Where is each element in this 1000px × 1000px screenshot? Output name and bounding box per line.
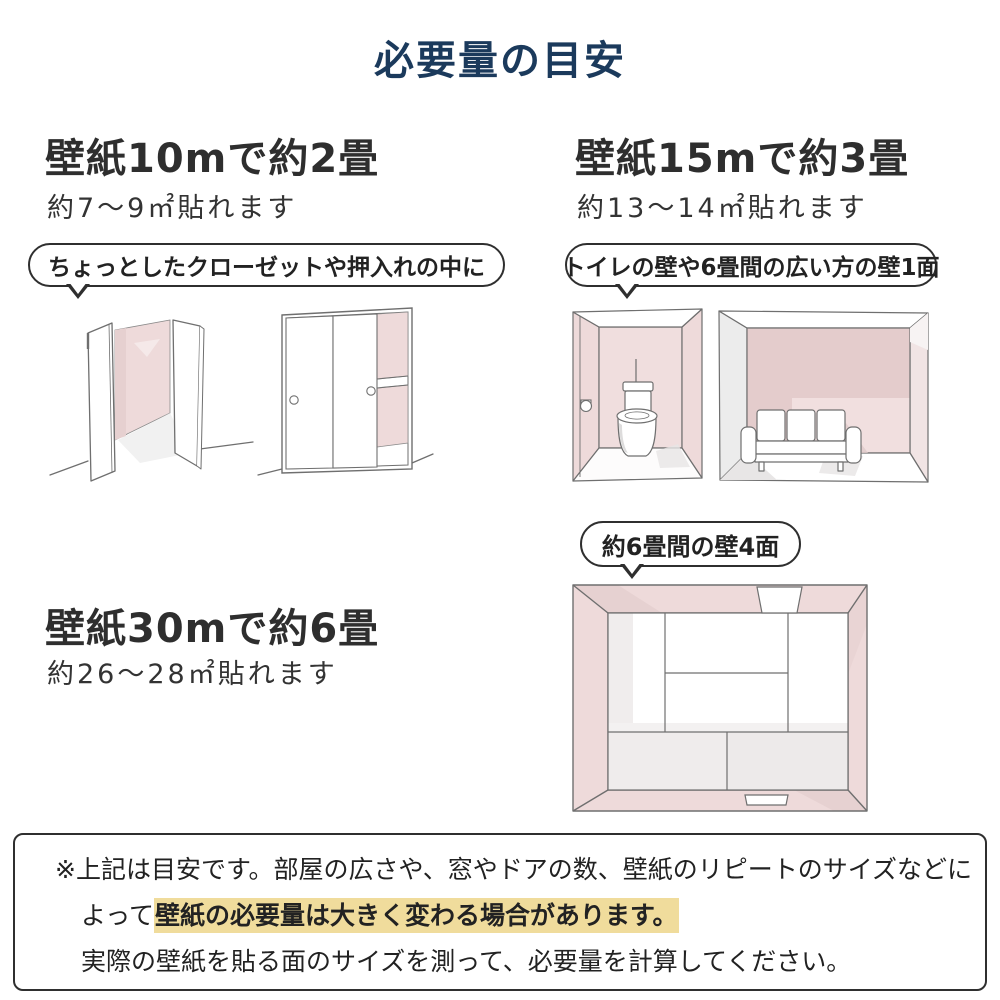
note-highlight: 壁紙の必要量は大きく変わる場合があります。 [154, 898, 679, 933]
bubble-toilet-usage: トイレの壁や6畳間の広い方の壁1面 [565, 243, 937, 287]
bubble-closet-usage-label: ちょっとしたクローゼットや押入れの中に [48, 248, 485, 282]
toilet-room-illustration [570, 305, 705, 485]
tatami-floor [608, 613, 848, 790]
heading-30m: 壁紙30mで約6畳 [45, 596, 379, 654]
sliding-doors [286, 314, 377, 469]
subheading-10m: 約7〜9㎡貼れます [47, 186, 297, 225]
sofa [741, 410, 861, 471]
door-handle-icon [367, 387, 375, 395]
sofa-room-illustration [713, 298, 935, 488]
subheading-15m: 約13〜14㎡貼れます [577, 186, 868, 225]
page-title: 必要量の目安 [0, 28, 1000, 86]
infographic-canvas: 必要量の目安 壁紙10mで約2畳 約7〜9㎡貼れます ちょっとしたクローゼットや… [0, 0, 1000, 1000]
bubble-tail-icon [623, 562, 641, 574]
bubble-closet-usage: ちょっとしたクローゼットや押入れの中に [28, 243, 505, 287]
heading-15m: 壁紙15mで約3畳 [575, 126, 909, 184]
bubble-room-usage-label: 約6畳間の壁4面 [602, 527, 779, 562]
toilet-paper-holder [581, 400, 592, 412]
heading-10m: 壁紙10mで約2畳 [45, 126, 379, 184]
subheading-30m: 約26〜28㎡貼れます [47, 652, 338, 691]
note-line-3: 実際の壁紙を貼る面のサイズを測って、必要量を計算してください。 [81, 939, 957, 985]
sliding-closet-illustration [255, 303, 435, 483]
note-box: ※上記は目安です。部屋の広さや、窓やドアの数、壁紙のリピートのサイズなどに よっ… [13, 833, 987, 991]
door-handle-icon [290, 396, 298, 404]
open-closet-illustration [48, 303, 258, 498]
note-line-2: よって壁紙の必要量は大きく変わる場合があります。 [81, 893, 957, 939]
note-line-2-prefix: よって [81, 901, 154, 930]
bubble-tail-icon [69, 282, 87, 294]
bubble-toilet-usage-label: トイレの壁や6畳間の広い方の壁1面 [563, 248, 940, 282]
note-line-1: ※上記は目安です。部屋の広さや、窓やドアの数、壁紙のリピートのサイズなどに [55, 847, 957, 893]
room-door-top [757, 587, 802, 613]
room-door-bottom [745, 795, 788, 805]
bubble-tail-icon [618, 282, 636, 294]
bubble-room-usage: 約6畳間の壁4面 [580, 521, 801, 567]
room-top-view-illustration [572, 584, 868, 812]
